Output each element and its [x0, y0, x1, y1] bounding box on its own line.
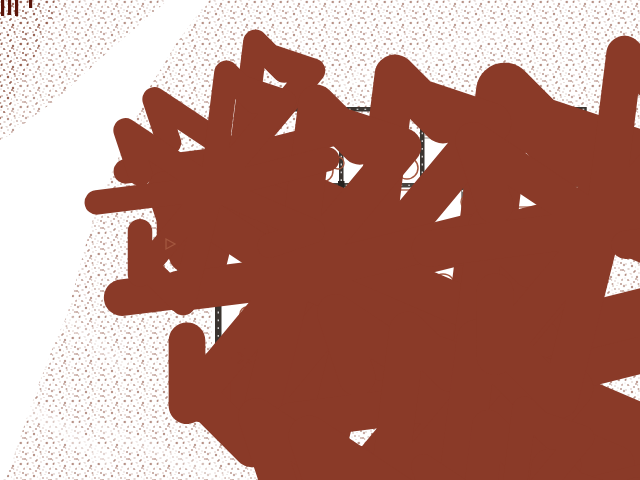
- corner-structure: [15, 0, 18, 16]
- site-plan-canvas: [0, 0, 640, 480]
- corner-structure: [8, 0, 11, 15]
- corner-structure: [1, 0, 4, 16]
- plan-viewport: [0, 0, 640, 480]
- corner-structure: [29, 0, 32, 8]
